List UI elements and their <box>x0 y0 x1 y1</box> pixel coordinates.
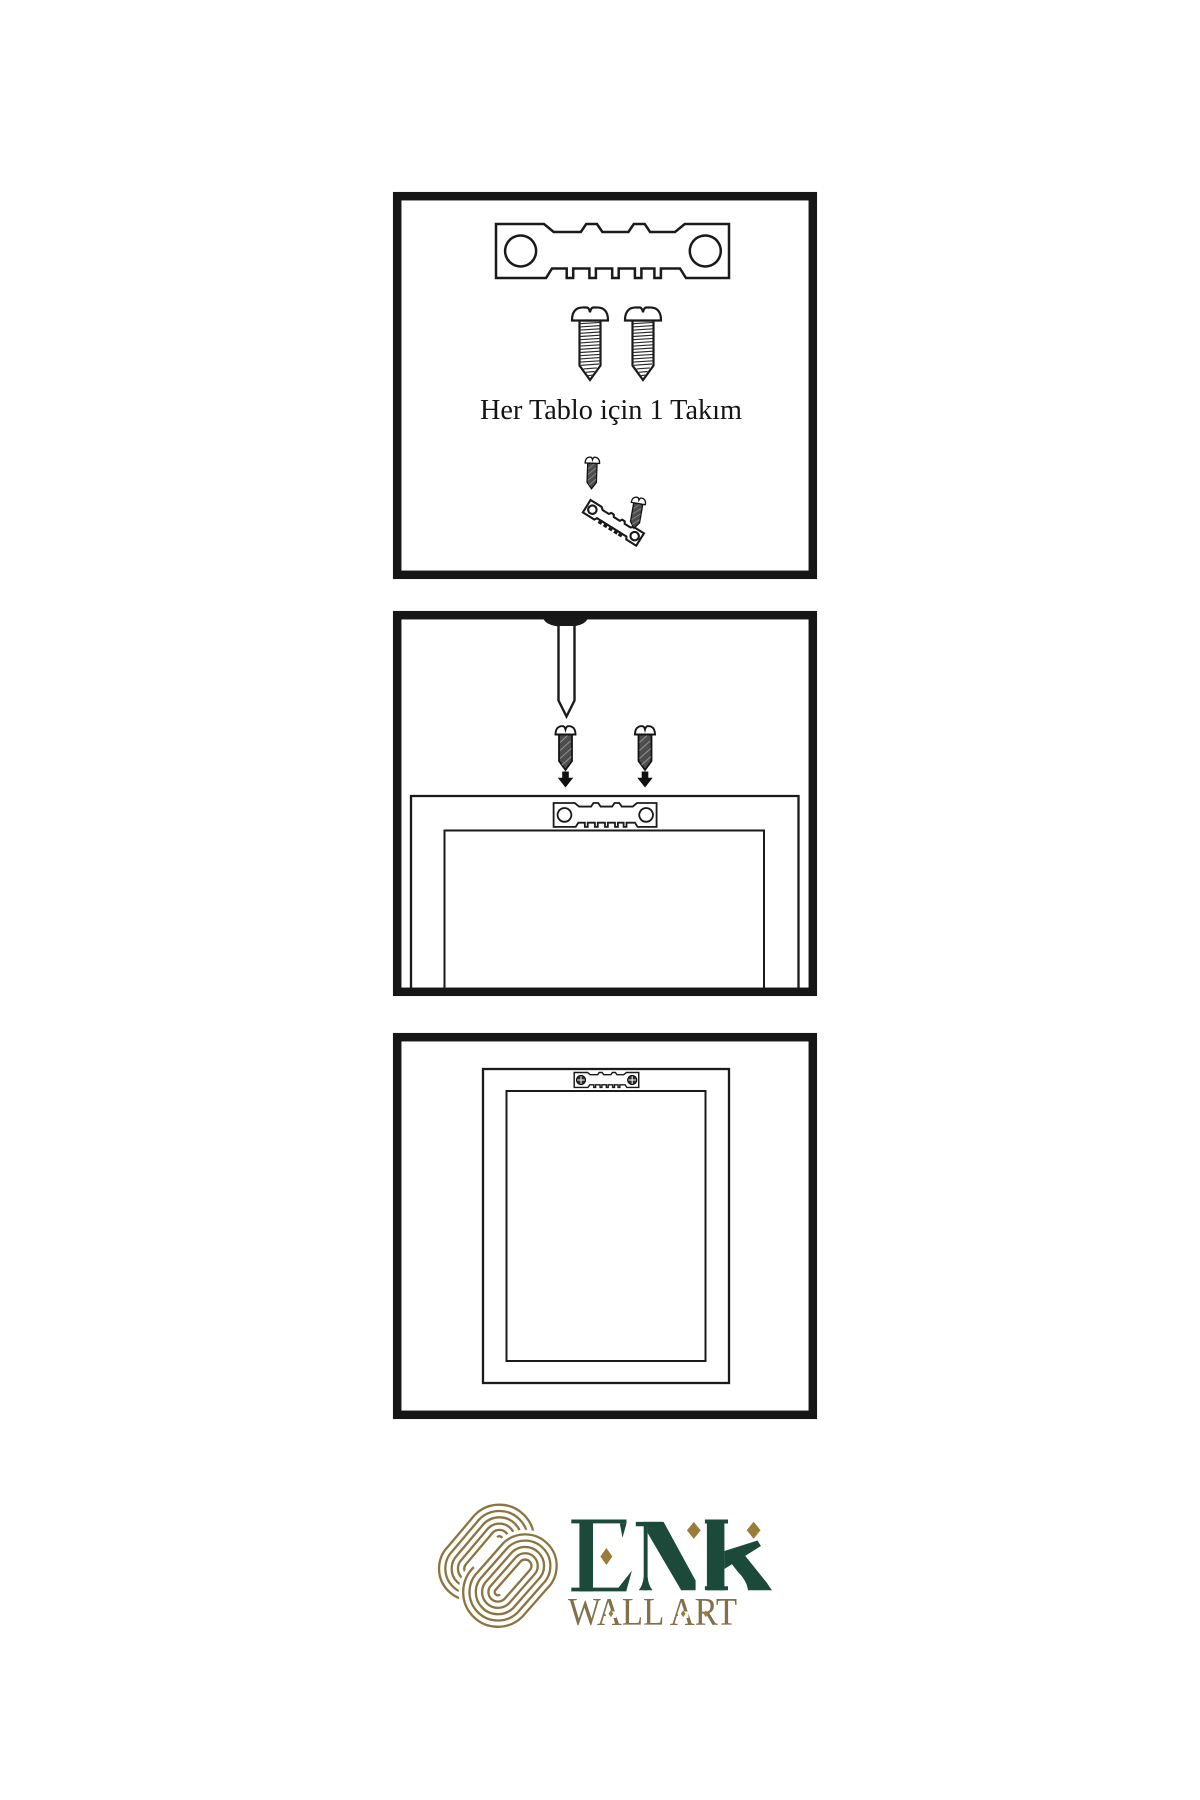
svg-text:WALL ART: WALL ART <box>568 1591 737 1634</box>
svg-text:Her Tablo için 1 Takım: Her Tablo için 1 Takım <box>480 394 742 426</box>
